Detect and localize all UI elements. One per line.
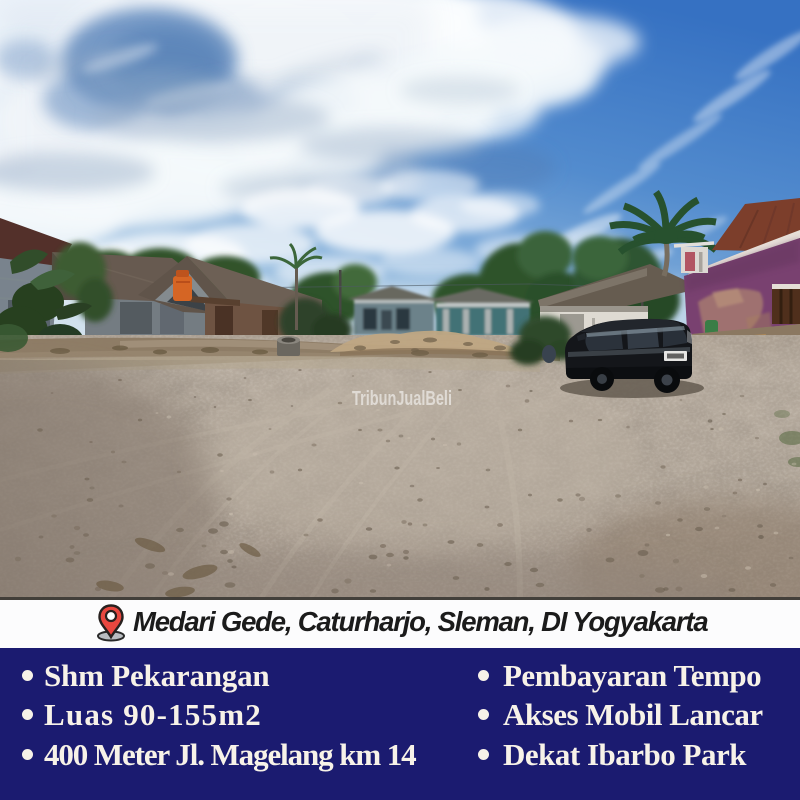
svg-text:TribunJualBeli: TribunJualBeli bbox=[352, 388, 452, 410]
